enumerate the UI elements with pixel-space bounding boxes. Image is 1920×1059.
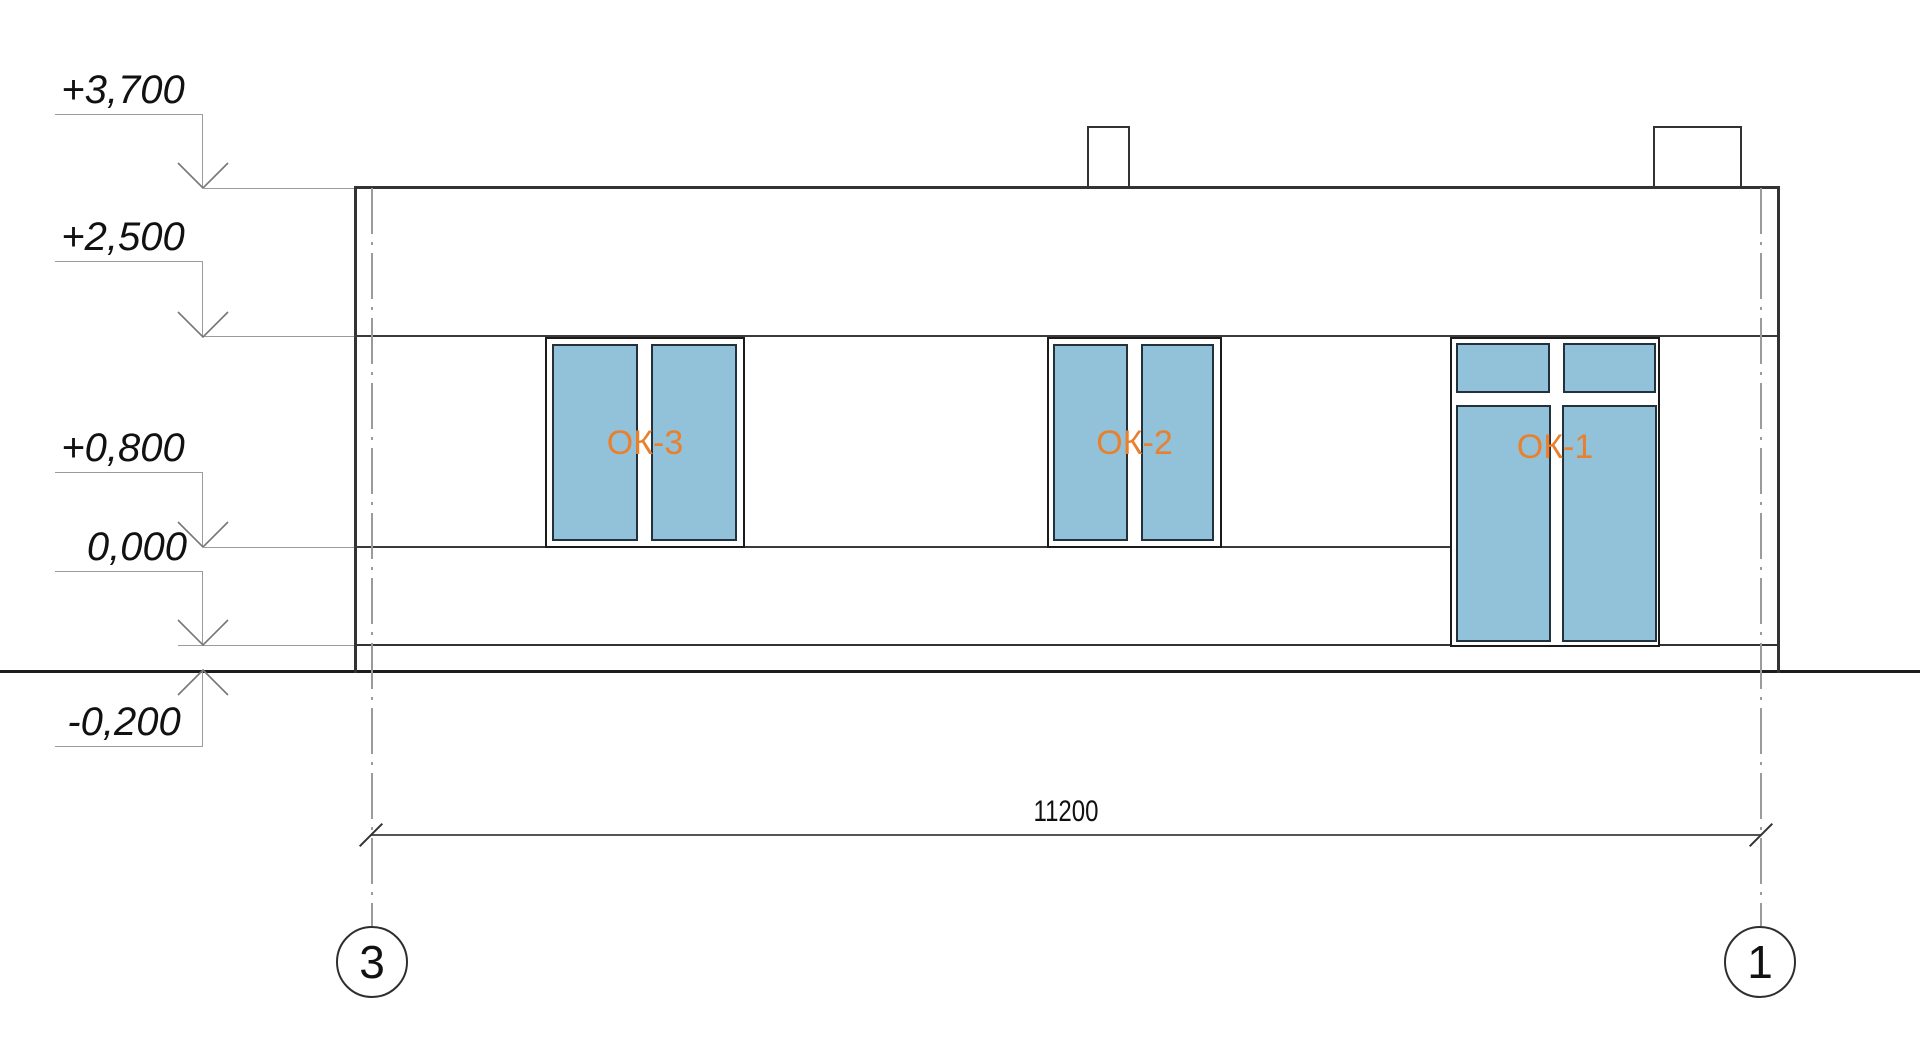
- dimension-value: 11200: [986, 797, 1146, 827]
- window-ok3-label: ОК-3: [547, 425, 743, 461]
- level-underline: [55, 472, 203, 473]
- elevation-drawing: +3,700 +2,500 +0,800 0,000 -0,200 ОК-3: [0, 0, 1920, 1059]
- axis-bubble-1: 1: [1724, 926, 1796, 998]
- roof-line: [354, 186, 1780, 189]
- window-ok1-transom-left: [1456, 343, 1550, 393]
- window-ok2: ОК-2: [1047, 337, 1222, 548]
- window-ok1: ОК-1: [1450, 337, 1660, 647]
- wall-right: [1777, 186, 1780, 673]
- level-underline: [55, 261, 203, 262]
- window-ok1-label: ОК-1: [1452, 429, 1658, 465]
- dimension-line: [371, 834, 1761, 836]
- level-arrow-down-icon: [177, 311, 229, 339]
- axis-label-3: 3: [359, 935, 385, 989]
- axis-label-1: 1: [1747, 935, 1773, 989]
- axis-bubble-3: 3: [336, 926, 408, 998]
- level-label-0000: 0,000: [37, 525, 187, 569]
- level-label-neg0200: -0,200: [49, 700, 199, 744]
- window-ok1-transom-right: [1563, 343, 1656, 393]
- level-underline: [55, 746, 203, 747]
- window-sill-line: [354, 546, 1450, 548]
- level-arrow-down-icon: [177, 619, 229, 647]
- level-label-3700: +3,700: [48, 68, 198, 112]
- level-arrow-down-icon: [177, 162, 229, 190]
- ground-line: [0, 670, 1920, 673]
- chimney-right: [1653, 126, 1742, 188]
- chimney-left: [1087, 126, 1130, 188]
- level-arrow-up-icon: [177, 669, 229, 697]
- level-label-0800: +0,800: [48, 426, 198, 470]
- level-underline: [55, 571, 203, 572]
- wall-left: [354, 186, 357, 673]
- axis-line-3: [371, 188, 373, 926]
- window-ok2-label: ОК-2: [1049, 425, 1220, 461]
- axis-line-1: [1760, 188, 1762, 926]
- level-label-2500: +2,500: [48, 215, 198, 259]
- window-ok3: ОК-3: [545, 337, 745, 548]
- level-underline: [55, 114, 203, 115]
